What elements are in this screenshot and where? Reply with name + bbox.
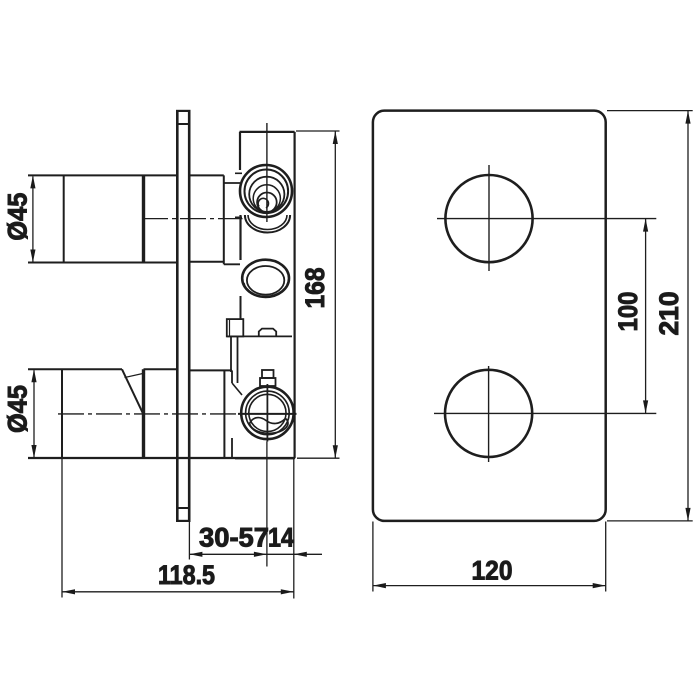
svg-text:118.5: 118.5	[158, 560, 215, 590]
svg-text:30-57: 30-57	[199, 523, 269, 553]
svg-text:14: 14	[268, 523, 294, 553]
svg-text:Ø45: Ø45	[3, 193, 33, 241]
svg-text:120: 120	[472, 556, 513, 586]
svg-text:100: 100	[613, 292, 643, 332]
svg-text:168: 168	[300, 268, 330, 309]
svg-text:210: 210	[654, 292, 684, 336]
svg-text:Ø45: Ø45	[3, 385, 33, 433]
